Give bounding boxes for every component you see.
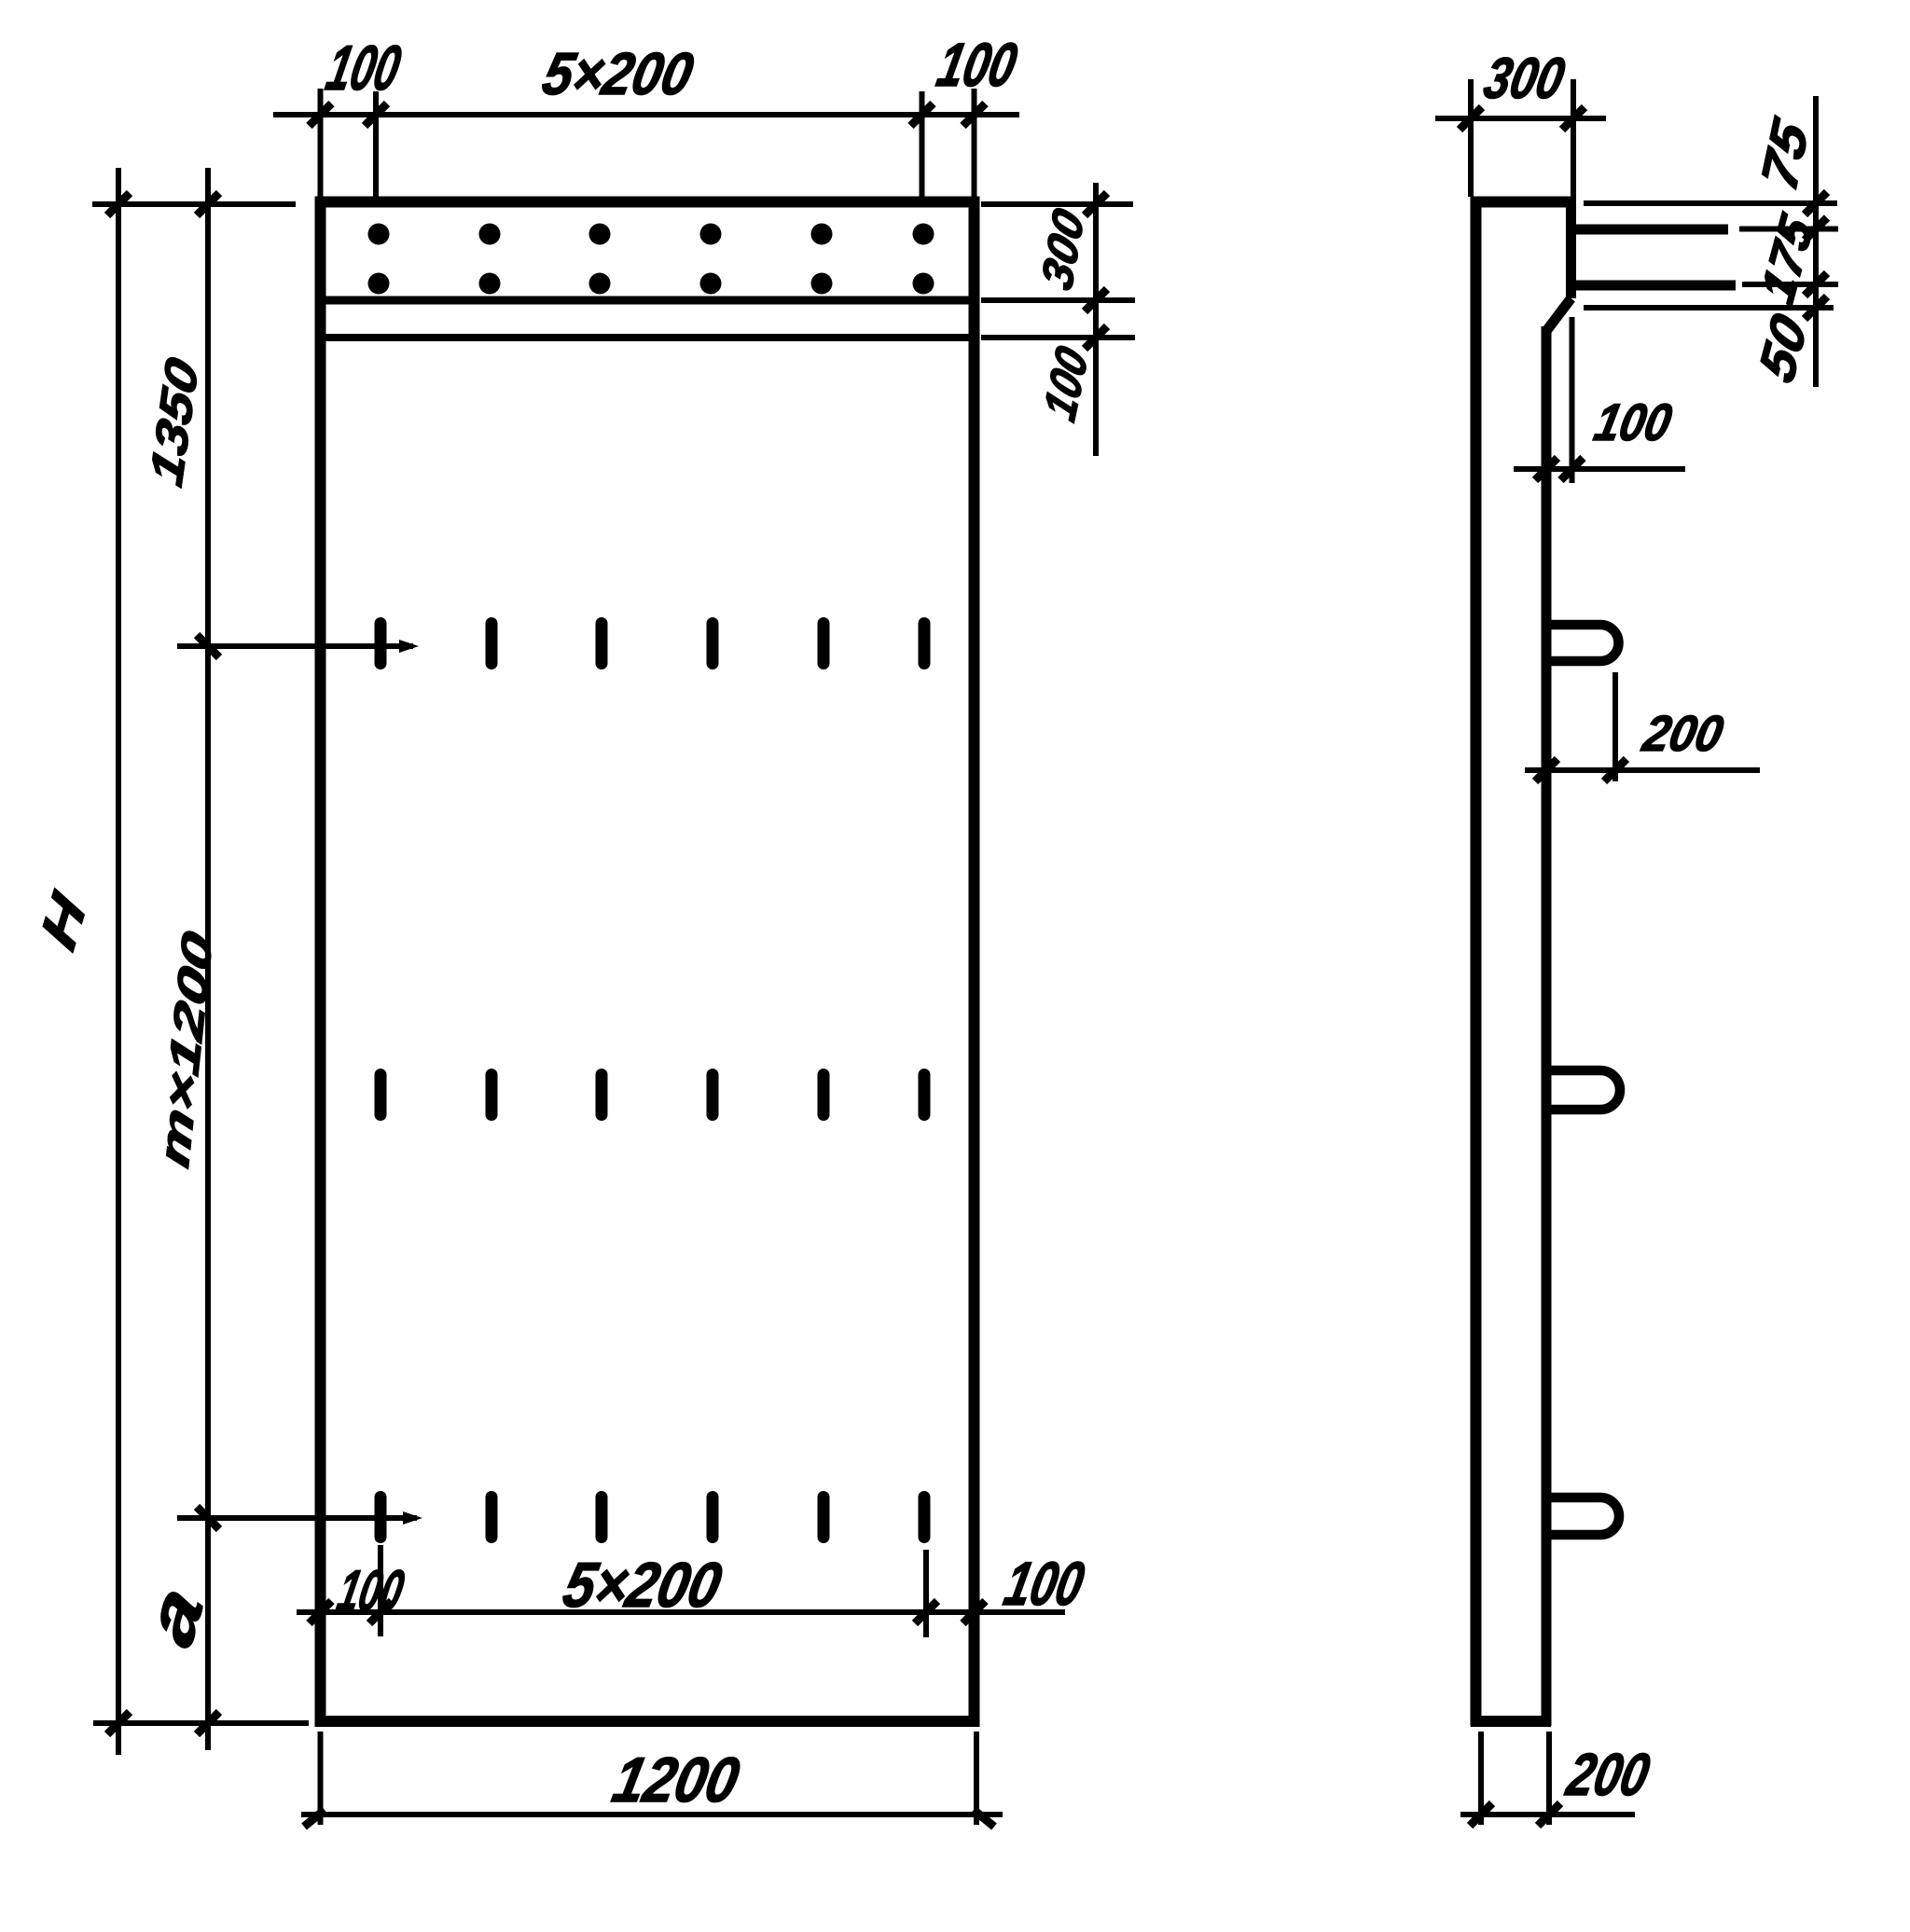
svg-text:1200: 1200: [607, 1745, 745, 1815]
svg-text:300: 300: [1479, 47, 1571, 111]
svg-text:100: 100: [321, 33, 407, 103]
svg-text:100: 100: [932, 32, 1023, 100]
svg-text:100: 100: [999, 1551, 1090, 1619]
svg-text:5×200: 5×200: [537, 40, 699, 107]
svg-text:200: 200: [1560, 1741, 1655, 1808]
svg-text:5×200: 5×200: [558, 1550, 727, 1621]
svg-text:200: 200: [1638, 706, 1728, 762]
svg-text:100: 100: [1589, 393, 1676, 451]
